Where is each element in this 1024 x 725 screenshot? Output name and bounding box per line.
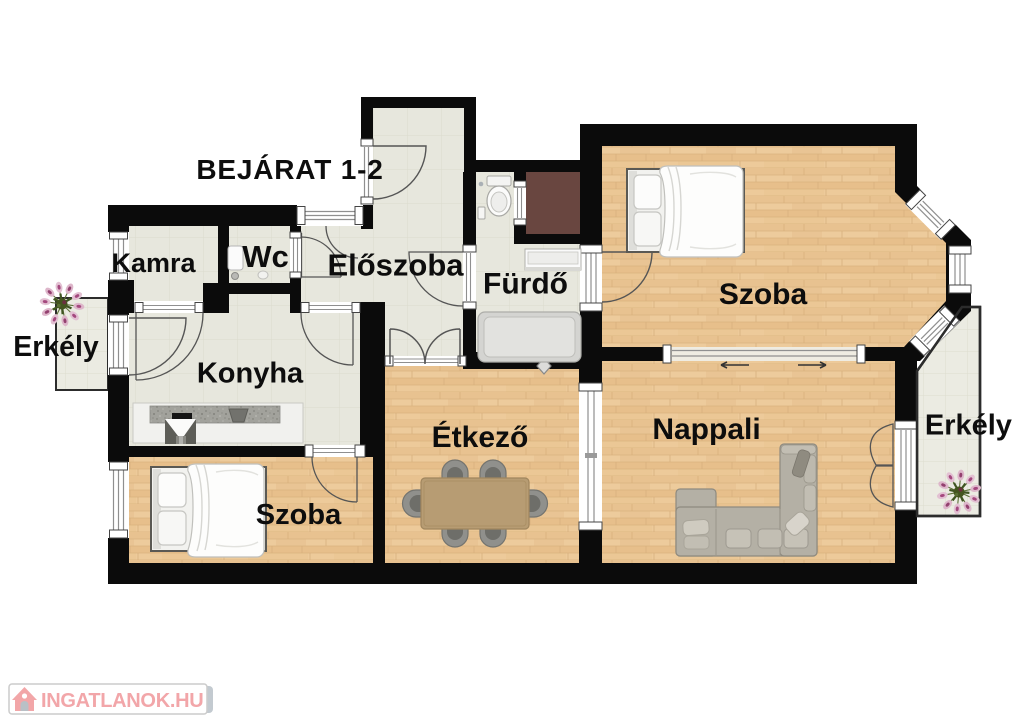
svg-text:Erkély: Erkély [925, 410, 1012, 442]
svg-text:Nappali: Nappali [652, 413, 760, 446]
svg-text:Étkező: Étkező [432, 420, 529, 454]
svg-text:INGATLANOK.HU: INGATLANOK.HU [41, 690, 203, 712]
svg-text:BEJÁRAT 1-2: BEJÁRAT 1-2 [196, 154, 383, 185]
svg-text:Erkély: Erkély [13, 331, 99, 363]
svg-text:Előszoba: Előszoba [327, 248, 464, 283]
svg-text:Fürdő: Fürdő [483, 268, 568, 301]
svg-text:Szoba: Szoba [719, 278, 808, 311]
svg-text:Kamra: Kamra [111, 248, 196, 278]
svg-text:Szoba: Szoba [256, 499, 342, 531]
svg-text:Konyha: Konyha [197, 358, 304, 390]
svg-text:Wc: Wc [242, 239, 289, 274]
